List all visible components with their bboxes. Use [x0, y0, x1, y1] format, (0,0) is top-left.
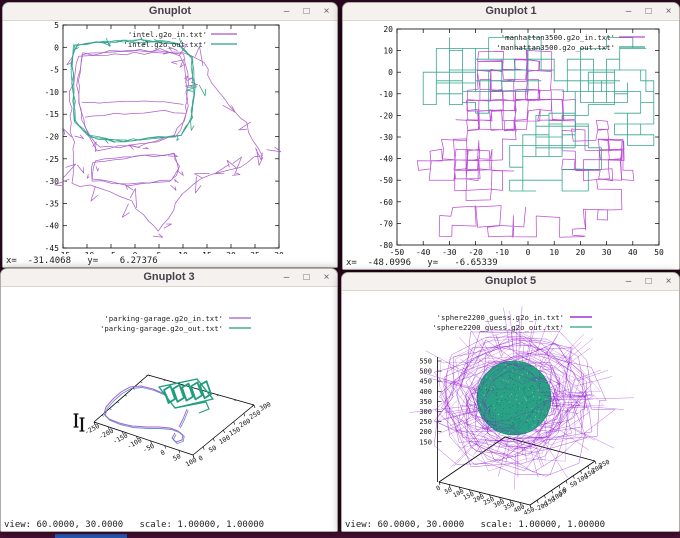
maximize-icon[interactable]: □	[643, 273, 654, 290]
svg-text:'parking-garage.g2o_in.txt': 'parking-garage.g2o_in.txt'	[104, 314, 223, 323]
svg-text:-20: -20	[45, 133, 60, 142]
svg-text:-40: -40	[379, 155, 394, 164]
svg-text:-60: -60	[379, 198, 394, 207]
z-axis-marks	[74, 414, 85, 431]
svg-text:400: 400	[419, 388, 432, 396]
titlebar[interactable]: Gnuplot 1 – □ ×	[343, 3, 679, 21]
svg-text:20: 20	[383, 25, 393, 34]
svg-text:-40: -40	[416, 248, 431, 256]
status-bar: view: 60.0000, 30.0000 scale: 1.00000, 1…	[1, 518, 337, 531]
svg-text:0: 0	[197, 454, 204, 463]
svg-text:-5: -5	[49, 66, 59, 75]
gnuplot-window-sphere: Gnuplot 5 – □ × 550500450400350300250200…	[341, 272, 680, 532]
svg-text:10: 10	[549, 248, 559, 256]
svg-text:-10: -10	[80, 251, 95, 254]
desktop-background: Gnuplot – □ × -15-10-505101520253050-5-1…	[0, 0, 680, 538]
series	[179, 409, 187, 427]
svg-text:0: 0	[388, 68, 393, 77]
svg-text:-20: -20	[379, 111, 394, 120]
svg-text:-80: -80	[379, 241, 394, 250]
svg-text:-10: -10	[495, 248, 510, 256]
svg-text:25: 25	[250, 251, 260, 254]
svg-text:300: 300	[258, 400, 272, 413]
svg-text:450: 450	[419, 378, 432, 386]
svg-text:-25: -25	[45, 155, 60, 164]
plot-svg: 5505004504003503002502001500501001502002…	[342, 291, 679, 518]
svg-text:-50: -50	[379, 176, 394, 185]
svg-text:-5: -5	[106, 251, 116, 254]
svg-text:200: 200	[419, 428, 432, 436]
svg-text:50: 50	[654, 248, 664, 256]
plot-svg: -50-40-30-20-100102030405020100-10-20-30…	[343, 21, 679, 256]
close-icon[interactable]: ×	[321, 3, 332, 20]
svg-text:150: 150	[419, 438, 432, 446]
svg-text:30: 30	[602, 248, 612, 256]
plot-canvas-manhattan[interactable]: -50-40-30-20-100102030405020100-10-20-30…	[343, 21, 679, 256]
svg-text:0: 0	[526, 248, 531, 256]
plot-canvas-garage[interactable]: -250-200-150-100-50050100050100150200250…	[1, 287, 337, 518]
svg-text:100: 100	[184, 456, 198, 469]
svg-text:'sphere2200_guess.g2o_in.txt': 'sphere2200_guess.g2o_in.txt'	[437, 313, 564, 322]
svg-text:'intel.g2o_out.txt': 'intel.g2o_out.txt'	[124, 40, 207, 49]
maximize-icon[interactable]: □	[301, 269, 312, 286]
cursor-coordinates: x= -31.4068 y= 6.27376	[6, 256, 158, 266]
legend: 'intel.g2o_in.txt''intel.g2o_out.txt'	[124, 30, 237, 49]
maximize-icon[interactable]: □	[301, 3, 312, 20]
svg-text:'parking-garage.g2o_out.txt': 'parking-garage.g2o_out.txt'	[100, 324, 223, 333]
svg-text:-30: -30	[45, 177, 60, 186]
svg-text:0: 0	[133, 251, 138, 254]
gnuplot-window-manhattan: Gnuplot 1 – □ × -50-40-30-20-10010203040…	[342, 2, 680, 270]
status-bar: x= -48.0996 y= -6.65339	[343, 256, 679, 269]
gnuplot-window-garage: Gnuplot 3 – □ × -250-200-150-100-5005010…	[0, 268, 338, 532]
series	[180, 410, 188, 428]
status-bar: x= -31.4068 y= 6.27376	[3, 254, 337, 267]
taskbar-accent-bar	[55, 534, 127, 538]
svg-text:250: 250	[598, 459, 611, 470]
svg-text:'intel.g2o_in.txt': 'intel.g2o_in.txt'	[128, 30, 207, 39]
svg-text:0: 0	[159, 448, 166, 457]
cursor-coordinates: x= -48.0996 y= -6.65339	[346, 258, 498, 268]
close-icon[interactable]: ×	[663, 3, 674, 20]
svg-text:'manhattan3500.g2o_in.txt': 'manhattan3500.g2o_in.txt'	[501, 33, 615, 42]
minimize-icon[interactable]: –	[623, 3, 634, 20]
svg-text:'sphere2200_guess.g2o_out.txt': 'sphere2200_guess.g2o_out.txt'	[432, 323, 564, 332]
svg-text:-10: -10	[379, 90, 394, 99]
plot-svg: -15-10-505101520253050-5-10-15-20-25-30-…	[3, 21, 337, 254]
svg-text:-45: -45	[45, 244, 60, 253]
titlebar[interactable]: Gnuplot 5 – □ ×	[342, 273, 679, 291]
svg-text:20: 20	[226, 251, 236, 254]
view-scale-readout: view: 60.0000, 30.0000 scale: 1.00000, 1…	[4, 520, 264, 530]
svg-text:350: 350	[419, 398, 432, 406]
svg-text:-15: -15	[45, 110, 60, 119]
svg-text:-50: -50	[142, 442, 156, 455]
plot-canvas-sphere[interactable]: 5505004504003503002502001500501001502002…	[342, 291, 679, 518]
series	[104, 386, 183, 442]
svg-text:250: 250	[419, 418, 432, 426]
legend: 'manhattan3500.g2o_in.txt''manhattan3500…	[496, 33, 645, 52]
series	[55, 44, 281, 237]
series	[423, 38, 654, 191]
maximize-icon[interactable]: □	[643, 3, 654, 20]
status-bar: view: 60.0000, 30.0000 scale: 1.00000, 1…	[342, 518, 679, 531]
svg-text:15: 15	[202, 251, 212, 254]
view-scale-readout: view: 60.0000, 30.0000 scale: 1.00000, 1…	[345, 520, 605, 530]
svg-text:10: 10	[383, 47, 393, 56]
gnuplot-window-intel: Gnuplot – □ × -15-10-505101520253050-5-1…	[2, 2, 338, 268]
minimize-icon[interactable]: –	[623, 273, 634, 290]
legend: 'parking-garage.g2o_in.txt''parking-gara…	[100, 314, 251, 333]
svg-text:0: 0	[54, 43, 59, 52]
svg-text:-30: -30	[442, 248, 457, 256]
minimize-icon[interactable]: –	[281, 3, 292, 20]
svg-text:40: 40	[628, 248, 638, 256]
close-icon[interactable]: ×	[321, 269, 332, 286]
titlebar[interactable]: Gnuplot 3 – □ ×	[1, 269, 337, 287]
close-icon[interactable]: ×	[663, 273, 674, 290]
minimize-icon[interactable]: –	[281, 269, 292, 286]
svg-text:500: 500	[419, 368, 432, 376]
svg-text:300: 300	[419, 408, 432, 416]
svg-text:30: 30	[274, 251, 284, 254]
svg-text:550: 550	[419, 358, 432, 366]
svg-text:0: 0	[435, 485, 442, 493]
plot-svg: -250-200-150-100-50050100050100150200250…	[1, 287, 337, 518]
svg-text:5: 5	[157, 251, 162, 254]
svg-text:-35: -35	[45, 199, 60, 208]
svg-text:'manhattan3500.g2o_out.txt': 'manhattan3500.g2o_out.txt'	[496, 43, 615, 52]
plot-canvas-intel[interactable]: -15-10-505101520253050-5-10-15-20-25-30-…	[3, 21, 337, 254]
titlebar[interactable]: Gnuplot – □ ×	[3, 3, 337, 21]
svg-text:-20: -20	[468, 248, 483, 256]
svg-text:-40: -40	[45, 222, 60, 231]
svg-text:-10: -10	[45, 88, 60, 97]
legend: 'sphere2200_guess.g2o_in.txt''sphere2200…	[432, 313, 592, 332]
svg-text:5: 5	[54, 21, 59, 30]
svg-text:-70: -70	[379, 219, 394, 228]
svg-text:50: 50	[172, 452, 183, 463]
svg-text:20: 20	[576, 248, 586, 256]
svg-text:50: 50	[207, 444, 218, 455]
svg-text:-30: -30	[379, 133, 394, 142]
axes-3d: -250-200-150-100-50050100050100150200250…	[83, 375, 272, 469]
svg-text:10: 10	[178, 251, 188, 254]
